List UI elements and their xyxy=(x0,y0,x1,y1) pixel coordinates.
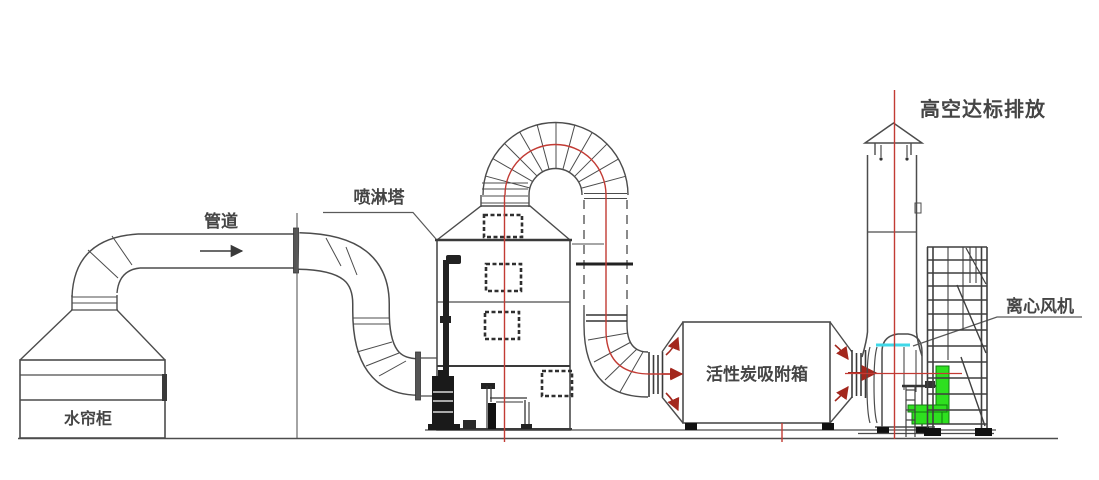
spray-tower xyxy=(428,206,604,430)
spray-tower-leader xyxy=(323,213,436,240)
overhead-duct-bend xyxy=(481,122,648,397)
water-curtain-cabinet-label: 水帘柜 xyxy=(64,409,112,428)
discharge-stack xyxy=(862,123,922,357)
ground-lines xyxy=(18,430,1058,439)
centrifugal-fan-label-group: 离心风机 xyxy=(913,296,1082,346)
pump xyxy=(432,376,454,430)
tower-hatch-mid xyxy=(486,264,521,291)
tower-hatch-top xyxy=(484,215,522,237)
activated-carbon-box-label: 活性炭吸附箱 xyxy=(706,364,808,385)
tower-hatch-base xyxy=(542,371,572,396)
high-altitude-discharge-label: 高空达标排放 xyxy=(920,97,1046,121)
tower-inlet-flange xyxy=(416,352,421,400)
spray-tower-label: 喷淋塔 xyxy=(354,187,406,208)
rain-cap xyxy=(865,123,922,143)
pump-pipe xyxy=(488,403,496,429)
process-flow-diagram: 水帘柜 管道 xyxy=(0,0,1099,480)
inlet-duct xyxy=(72,228,299,297)
tower-pump-assembly xyxy=(428,255,532,430)
s-duct xyxy=(299,238,437,400)
duct-flange xyxy=(294,228,299,273)
centrifugal-fan xyxy=(858,334,994,434)
diagram-canvas: 水帘柜 管道 xyxy=(0,0,1099,480)
tower-hatch-low xyxy=(485,312,519,339)
fan-motor xyxy=(908,366,949,424)
spray-tower-label-group: 喷淋塔 xyxy=(323,187,436,239)
fan-leader xyxy=(913,317,1082,346)
pipe-label: 管道 xyxy=(204,211,238,232)
centrifugal-fan-label: 离心风机 xyxy=(1006,296,1074,317)
cabinet-edge-bar xyxy=(162,374,167,401)
